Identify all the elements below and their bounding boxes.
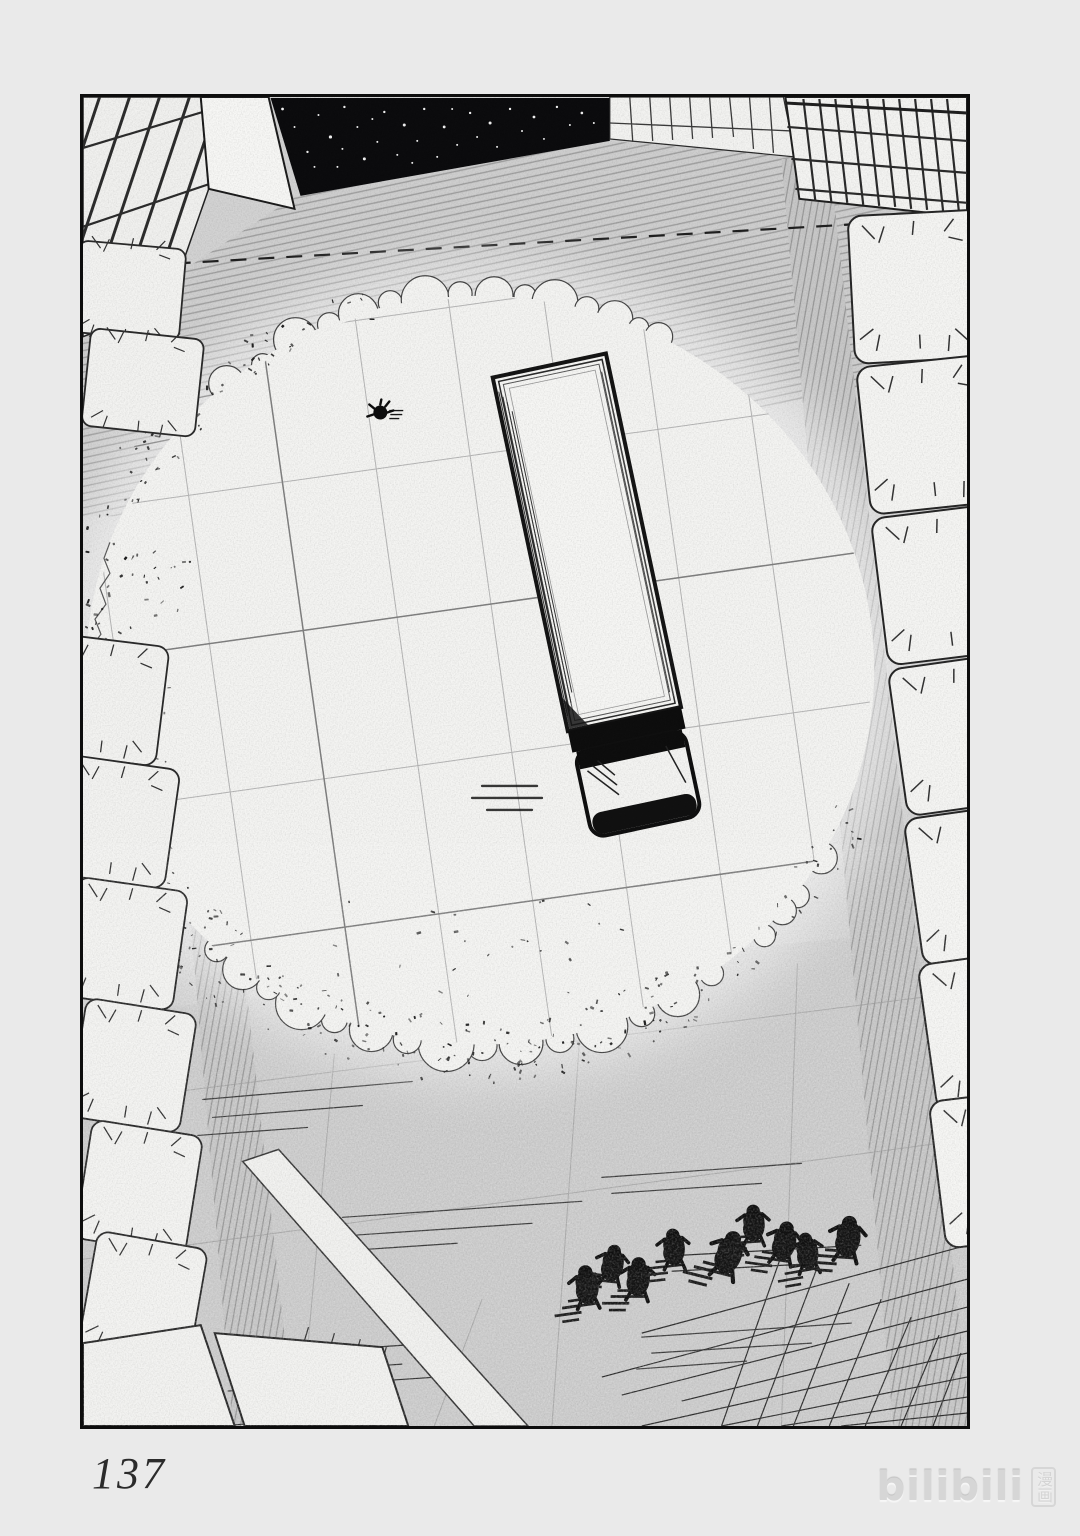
page-number: 137 (92, 1448, 167, 1499)
tone-noise-light (83, 856, 967, 1426)
manga-page: 137 bilibili 漫画 (0, 0, 1080, 1536)
panel-artwork (83, 97, 967, 1426)
bilibili-manga-label: 漫画 (1031, 1467, 1056, 1507)
manga-panel (80, 94, 970, 1429)
bilibili-logo: bilibili (876, 1464, 1024, 1510)
bilibili-watermark: bilibili 漫画 (876, 1464, 1056, 1510)
